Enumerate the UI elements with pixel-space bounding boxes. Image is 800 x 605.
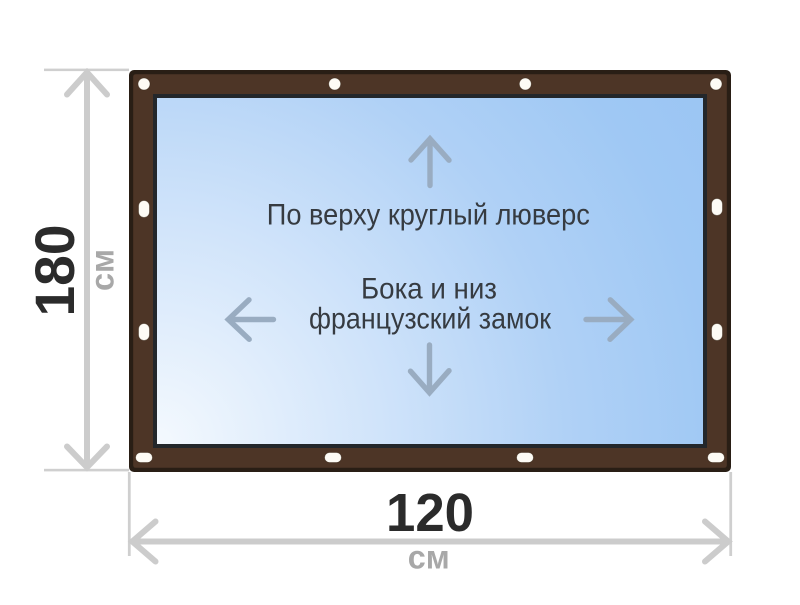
svg-text:см: см (408, 539, 450, 576)
svg-text:французский замок: французский замок (309, 303, 552, 336)
svg-text:По верху круглый люверс: По верху круглый люверс (267, 199, 590, 232)
svg-text:120: 120 (386, 483, 474, 543)
svg-text:Бока и низ: Бока и низ (361, 273, 497, 306)
svg-text:180: 180 (23, 225, 86, 317)
svg-text:см: см (84, 249, 121, 291)
